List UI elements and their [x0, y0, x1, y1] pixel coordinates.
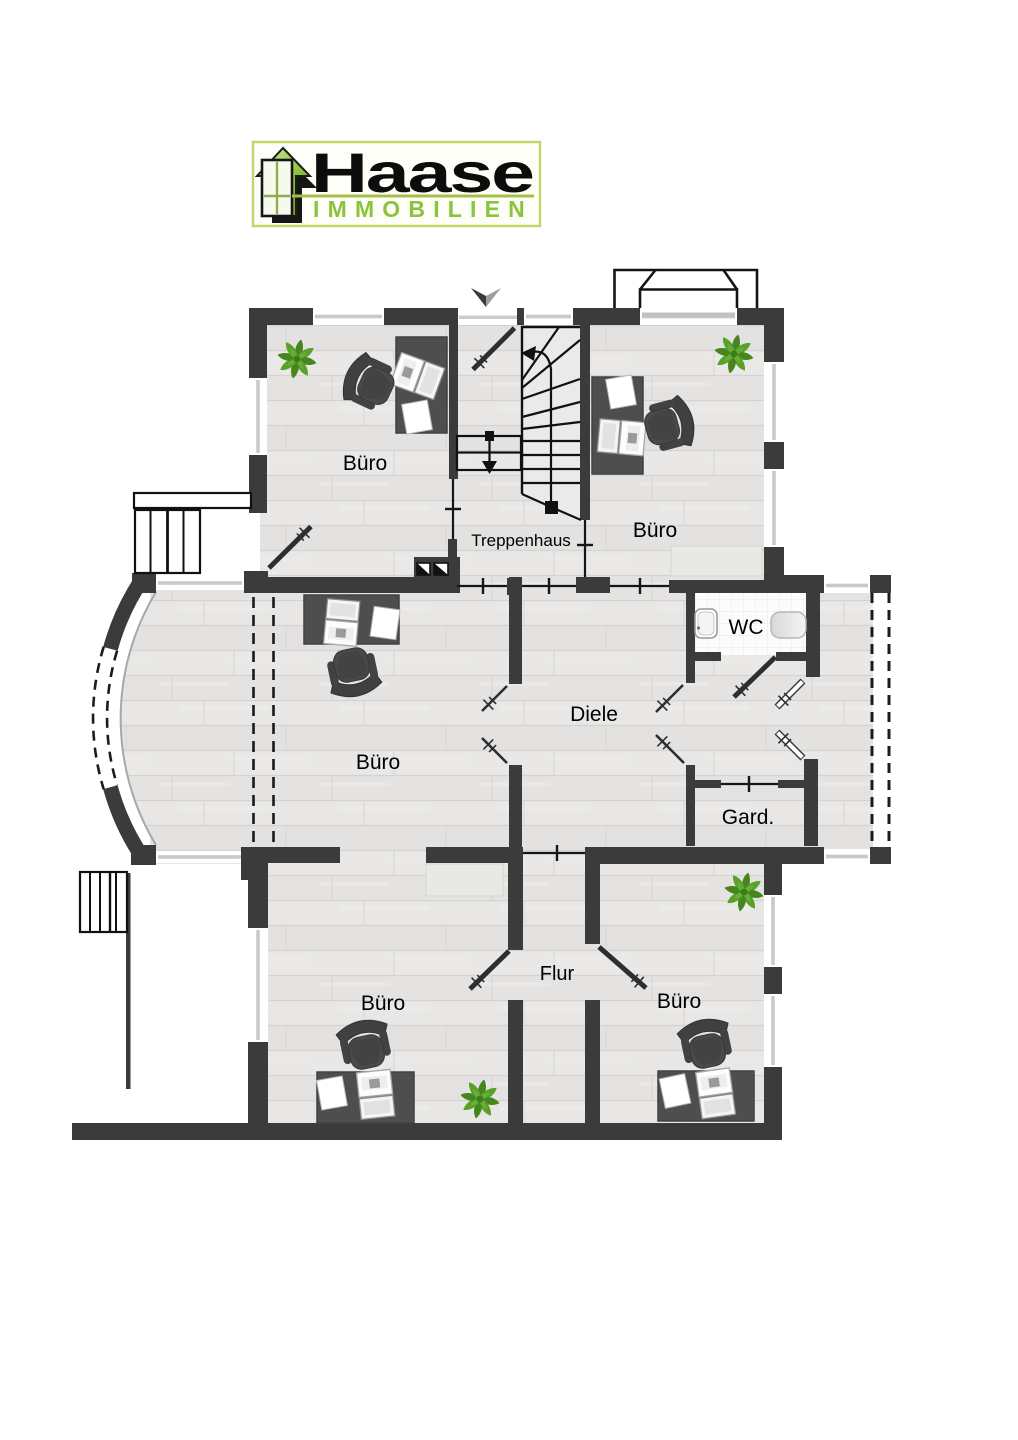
svg-text:Gard.: Gard. [722, 806, 775, 829]
svg-text:WC: WC [729, 616, 764, 639]
svg-text:Diele: Diele [570, 703, 618, 726]
svg-text:Büro: Büro [361, 992, 405, 1015]
svg-text:Büro: Büro [356, 751, 400, 774]
svg-text:Büro: Büro [343, 452, 387, 475]
svg-text:Büro: Büro [633, 519, 677, 542]
svg-text:Treppenhaus: Treppenhaus [471, 531, 571, 550]
svg-text:IMMOBILIEN: IMMOBILIEN [313, 196, 533, 222]
svg-text:Haase: Haase [311, 141, 533, 204]
svg-text:Flur: Flur [540, 963, 575, 985]
svg-text:Büro: Büro [657, 990, 701, 1013]
